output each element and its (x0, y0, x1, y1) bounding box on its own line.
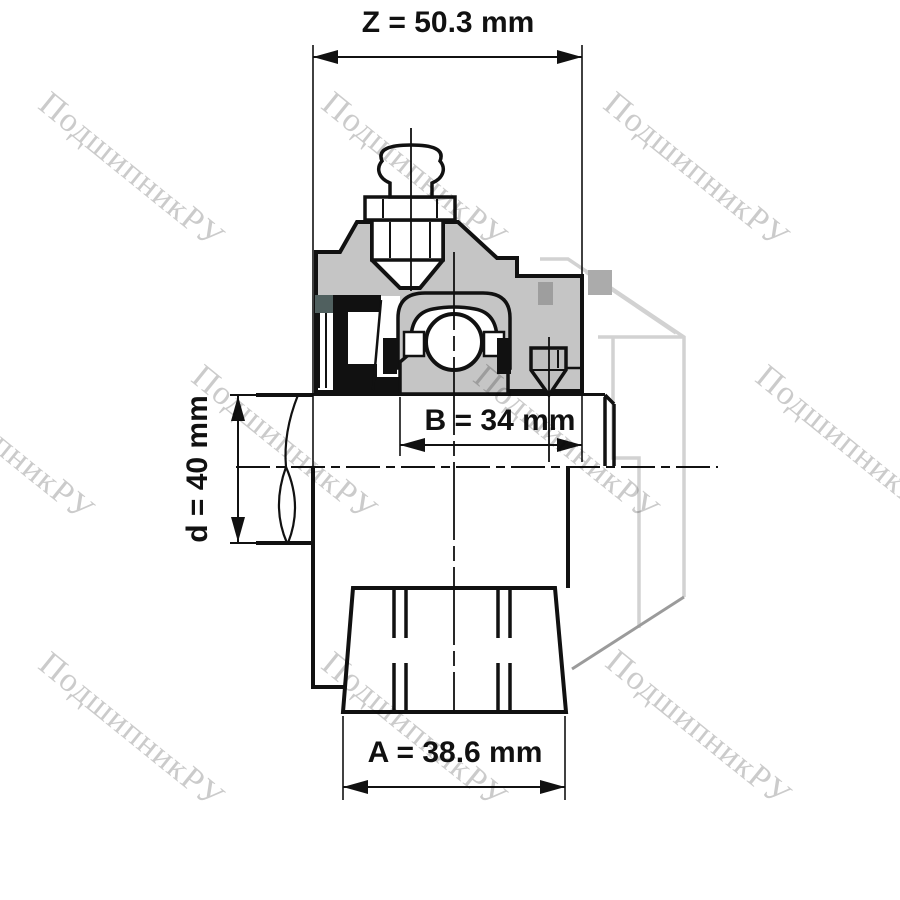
bearing-insert (383, 293, 511, 394)
dimension-b-label: B = 34 mm (425, 404, 576, 437)
seal-black-left (333, 295, 348, 390)
seal-section-right (497, 338, 511, 374)
dimension-d-label: d = 40 mm (181, 395, 214, 543)
fitting-hex (365, 197, 455, 220)
dimension-z-label: Z = 50.3 mm (362, 6, 535, 39)
fitting-stem (372, 220, 443, 260)
shaft-break-curve (286, 395, 299, 467)
shaft-break-lens-left (279, 467, 287, 543)
dimension-z: Z = 50.3 mm (313, 6, 582, 64)
phantom-bolt-hole (588, 270, 612, 295)
seal-section-left (383, 338, 397, 374)
dimension-a: A = 38.6 mm (343, 716, 565, 800)
arrowhead (313, 50, 338, 64)
grease-fitting (365, 145, 455, 260)
technical-drawing: Z = 50.3 mm B = 34 mm d = 40 mm (0, 0, 900, 900)
arrowhead (343, 780, 368, 794)
arrowhead (231, 517, 245, 542)
dimension-a-label: A = 38.6 mm (368, 736, 543, 769)
seal-groove-left (404, 332, 424, 356)
bearing-drawing-page: Z = 50.3 mm B = 34 mm d = 40 mm (0, 0, 900, 900)
setscrew-hole-section (538, 282, 553, 305)
arrowhead (557, 50, 582, 64)
seal-slinger-cap (315, 295, 333, 313)
arrowhead (540, 780, 565, 794)
arrowhead (231, 396, 245, 421)
shaft-break-lens-right (286, 467, 295, 543)
dimension-d: d = 40 mm (181, 395, 245, 543)
phantom-bottom-diagonal (572, 597, 684, 669)
phantom-inner-step (613, 337, 639, 628)
